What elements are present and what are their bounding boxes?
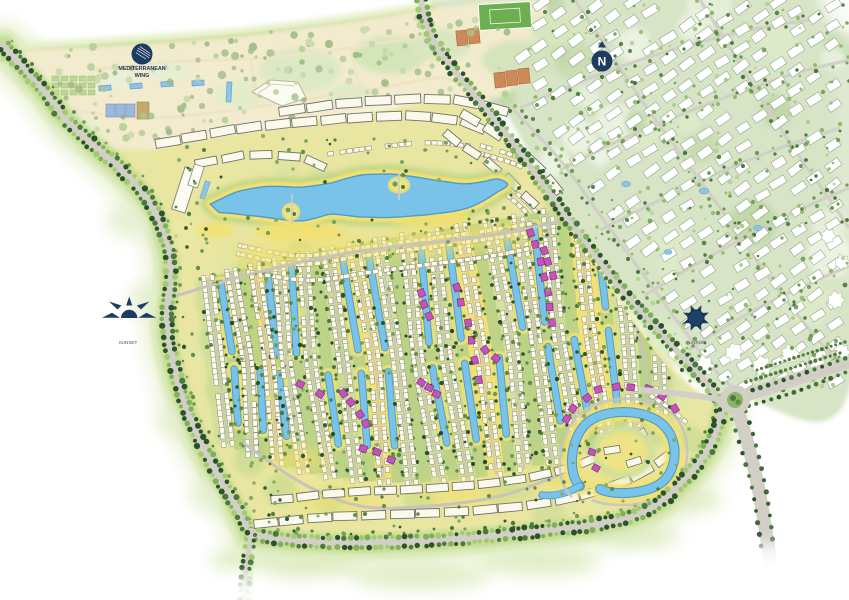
svg-text:MEDITERRANEAN: MEDITERRANEAN [118,66,165,72]
svg-text:SUNSET: SUNSET [119,340,138,345]
svg-text:WING: WING [135,73,150,79]
svg-text:N: N [598,55,607,69]
svg-text:SUNRISE: SUNRISE [686,340,706,345]
